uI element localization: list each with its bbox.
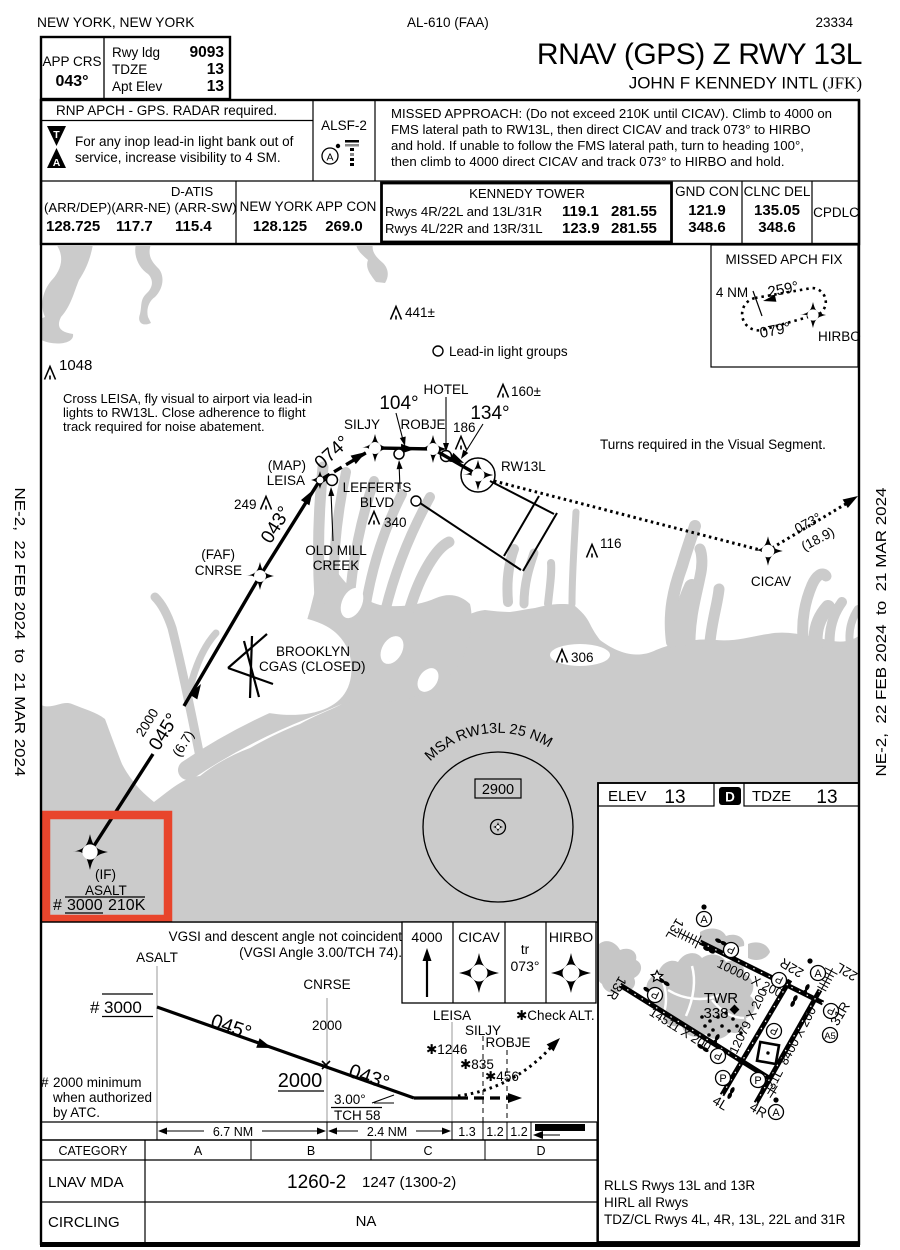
svg-text:Rwys 4R/22L and 13L/31R: Rwys 4R/22L and 13L/31R: [385, 204, 542, 219]
svg-text:D: D: [725, 790, 735, 805]
svg-text:APP CRS: APP CRS: [42, 54, 101, 69]
svg-text:123.9: 123.9: [562, 220, 600, 237]
svg-text:210K: 210K: [108, 897, 146, 914]
svg-text:13: 13: [207, 61, 225, 78]
svg-text:AL-610 (FAA): AL-610 (FAA): [407, 15, 489, 30]
svg-text:6.7 NM: 6.7 NM: [213, 1125, 253, 1139]
svg-text:281.55: 281.55: [611, 220, 657, 237]
svg-text:TDZE: TDZE: [112, 62, 147, 77]
svg-text:HIRBO: HIRBO: [549, 929, 593, 945]
svg-text:BROOKLYN: BROOKLYN: [276, 644, 350, 659]
svg-text:Rwy ldg: Rwy ldg: [112, 45, 160, 60]
svg-text:MISSED APPROACH: (Do not excee: MISSED APPROACH: (Do not exceed 210K unt…: [391, 106, 832, 121]
svg-text:D: D: [536, 1144, 545, 1158]
svg-text:Turns required in the Visual S: Turns required in the Visual Segment.: [600, 437, 826, 452]
svg-text:104°: 104°: [379, 393, 418, 414]
svg-text:ALSF-2: ALSF-2: [321, 118, 367, 133]
svg-text:A: A: [772, 1107, 780, 1119]
svg-text:CATEGORY: CATEGORY: [59, 1144, 129, 1158]
svg-text:ROBJE: ROBJE: [400, 417, 445, 432]
svg-text:track required for noise abate: track required for noise abatement.: [63, 419, 265, 434]
svg-text:OLD MILL: OLD MILL: [305, 543, 367, 558]
svg-text:128.125: 128.125: [253, 218, 307, 235]
svg-text:✱Check ALT.: ✱Check ALT.: [516, 1008, 595, 1023]
svg-text:LEISA: LEISA: [267, 473, 305, 488]
svg-text:1.2: 1.2: [510, 1125, 527, 1139]
svg-text:269.0: 269.0: [325, 218, 363, 235]
svg-text:NEW YORK APP CON: NEW YORK APP CON: [240, 199, 377, 214]
svg-text:2000: 2000: [312, 1018, 342, 1033]
svg-text:249: 249: [234, 497, 257, 512]
svg-text:Rwys 4L/22R and 13R/31L: Rwys 4L/22R and 13R/31L: [385, 221, 543, 236]
svg-text:ELEV: ELEV: [608, 788, 646, 805]
svg-text:For any inop lead-in light ban: For any inop lead-in light bank out of: [75, 134, 294, 149]
svg-text:P: P: [719, 1073, 726, 1085]
svg-text:P: P: [754, 1075, 761, 1087]
svg-text:128.725: 128.725: [46, 218, 100, 235]
svg-text:134°: 134°: [470, 403, 509, 424]
svg-text:HOTEL: HOTEL: [423, 382, 469, 397]
svg-text:service, increase visibility t: service, increase visibility to 4 SM.: [75, 150, 281, 165]
svg-text:348.6: 348.6: [758, 219, 796, 236]
svg-text:LEFFERTS: LEFFERTS: [343, 480, 412, 495]
svg-text:NE-2, 22 FEB 2024 to 21 MAR: NE-2, 22 FEB 2024 to 21 MAR 2024: [11, 488, 28, 777]
svg-text:LEISA: LEISA: [433, 1008, 471, 1023]
svg-text:BLVD: BLVD: [360, 495, 395, 510]
svg-text:(MAP): (MAP): [268, 458, 306, 473]
svg-text:TCH 58: TCH 58: [334, 1108, 381, 1123]
svg-text:4000: 4000: [411, 929, 442, 945]
svg-text:✱1246: ✱1246: [426, 1042, 467, 1057]
svg-text:FMS lateral path to RW13L, the: FMS lateral path to RW13L, then direct C…: [391, 122, 811, 137]
svg-text:ROBJE: ROBJE: [485, 1035, 530, 1050]
svg-text:RLLS Rwys 13L and 13R: RLLS Rwys 13L and 13R: [604, 1178, 755, 1193]
svg-text:3000: 3000: [104, 998, 142, 1017]
svg-text:A: A: [53, 157, 61, 169]
svg-text:RNP APCH - GPS. RADAR required: RNP APCH - GPS. RADAR required.: [56, 103, 277, 118]
svg-text:1.2: 1.2: [486, 1125, 503, 1139]
svg-text:338: 338: [703, 1005, 728, 1022]
svg-text:13: 13: [664, 787, 685, 808]
svg-text:281.55: 281.55: [611, 203, 657, 220]
svg-text:CICAV: CICAV: [458, 929, 500, 945]
svg-text:CPDLC: CPDLC: [813, 205, 859, 220]
svg-text:1247 (1300-2): 1247 (1300-2): [362, 1174, 456, 1191]
svg-text:by ATC.: by ATC.: [53, 1105, 100, 1120]
svg-text:13: 13: [816, 787, 837, 808]
svg-text:D-ATIS: D-ATIS: [171, 184, 213, 199]
svg-text:#: #: [90, 998, 100, 1017]
svg-text:GND CON: GND CON: [675, 184, 739, 199]
svg-text:B: B: [307, 1144, 315, 1158]
svg-text:348.6: 348.6: [688, 219, 726, 236]
svg-text:A: A: [814, 968, 822, 980]
svg-text:A: A: [326, 152, 333, 164]
svg-text:then climb to 4000 direct CICA: then climb to 4000 direct CICAV and trac…: [391, 154, 785, 169]
svg-text:CNRSE: CNRSE: [195, 563, 242, 578]
svg-text:RNAV (GPS) Z RWY 13L: RNAV (GPS) Z RWY 13L: [537, 38, 862, 71]
svg-text:KENNEDY TOWER: KENNEDY TOWER: [469, 186, 585, 201]
svg-text:(VGSI Angle 3.00/TCH 74).: (VGSI Angle 3.00/TCH 74).: [239, 945, 402, 960]
svg-text:23334: 23334: [815, 15, 853, 30]
svg-text:Cross LEISA, fly visual to air: Cross LEISA, fly visual to airport via l…: [63, 391, 312, 406]
svg-text:CNRSE: CNRSE: [303, 977, 350, 992]
svg-text:441±: 441±: [405, 305, 435, 320]
svg-text:(ARR/DEP)(ARR-NE) (ARR-SW): (ARR/DEP)(ARR-NE) (ARR-SW): [44, 200, 237, 215]
svg-text:TDZ/CL Rwys 4L, 4R, 13L, 22L a: TDZ/CL Rwys 4L, 4R, 13L, 22L and 31R: [604, 1212, 846, 1227]
svg-text:LNAV MDA: LNAV MDA: [48, 1174, 124, 1191]
svg-text:2000: 2000: [278, 1070, 323, 1092]
svg-text:CICAV: CICAV: [751, 574, 791, 589]
svg-text:186: 186: [453, 420, 476, 435]
svg-text:2900: 2900: [482, 782, 514, 798]
svg-text:and hold. If unable to follow: and hold. If unable to follow the FMS la…: [391, 138, 804, 153]
svg-text:NE-2, 22 FEB 2024 to 21 MAR: NE-2, 22 FEB 2024 to 21 MAR 2024: [873, 488, 890, 777]
svg-text:1.3: 1.3: [458, 1125, 475, 1139]
svg-text:A5: A5: [824, 1031, 836, 1042]
svg-text:TDZE: TDZE: [752, 788, 791, 805]
svg-text:3.00°: 3.00°: [334, 1092, 366, 1107]
svg-text:340: 340: [384, 515, 407, 530]
svg-text:2.4 NM: 2.4 NM: [367, 1125, 407, 1139]
svg-text:(FAF): (FAF): [201, 547, 235, 562]
svg-text:13: 13: [207, 78, 225, 95]
svg-text:when authorized: when authorized: [52, 1090, 152, 1105]
svg-text:JOHN F KENNEDY INTL (JFK): JOHN F KENNEDY INTL (JFK): [629, 74, 862, 93]
svg-text:117.7: 117.7: [116, 218, 153, 235]
svg-text:CIRCLING: CIRCLING: [48, 1214, 120, 1231]
svg-text:121.9: 121.9: [688, 202, 726, 219]
svg-text:T: T: [53, 129, 60, 141]
svg-text:043°: 043°: [55, 73, 88, 90]
svg-text:073°: 073°: [511, 958, 540, 974]
svg-text:Lead-in light groups: Lead-in light groups: [449, 344, 568, 359]
svg-text:Apt Elev: Apt Elev: [112, 79, 163, 94]
svg-text:NA: NA: [356, 1213, 377, 1230]
svg-text:C: C: [423, 1144, 432, 1158]
svg-text:ASALT: ASALT: [136, 950, 178, 965]
svg-text:160±: 160±: [511, 384, 541, 399]
svg-text:1260-2: 1260-2: [287, 1172, 346, 1193]
svg-text:4 NM: 4 NM: [716, 285, 748, 300]
svg-text:CLNC DEL: CLNC DEL: [744, 184, 811, 199]
svg-text:VGSI and descent angle not coi: VGSI and descent angle not coincident: [169, 929, 403, 944]
svg-text:1048: 1048: [59, 357, 92, 374]
svg-text:3000: 3000: [67, 897, 103, 914]
svg-text:(IF): (IF): [95, 867, 116, 882]
svg-text:tr: tr: [521, 942, 530, 957]
svg-text:A: A: [700, 914, 708, 926]
svg-text:SILJY: SILJY: [344, 417, 380, 432]
svg-text:119.1: 119.1: [562, 203, 599, 220]
svg-text:HIRBO: HIRBO: [818, 329, 861, 344]
svg-text:RW13L: RW13L: [501, 459, 546, 474]
svg-text:CGAS (CLOSED): CGAS (CLOSED): [259, 659, 366, 674]
svg-text:306: 306: [571, 650, 594, 665]
svg-text:ASALT: ASALT: [85, 883, 127, 898]
svg-text:9093: 9093: [190, 44, 225, 61]
svg-text:lights to RW13L. Close adheren: lights to RW13L. Close adherence to flig…: [63, 405, 306, 420]
svg-text:135.05: 135.05: [754, 202, 800, 219]
svg-text:HIRL all Rwys: HIRL all Rwys: [604, 1195, 689, 1210]
svg-text:A: A: [194, 1144, 203, 1158]
svg-text:CREEK: CREEK: [313, 558, 360, 573]
svg-text:116: 116: [600, 536, 622, 551]
svg-text:NEW YORK, NEW YORK: NEW YORK, NEW YORK: [37, 15, 195, 30]
svg-text:#: #: [53, 897, 62, 914]
svg-text:2000 minimum: 2000 minimum: [53, 1075, 142, 1090]
svg-text:115.4: 115.4: [175, 218, 212, 235]
svg-text:MISSED APCH FIX: MISSED APCH FIX: [725, 252, 842, 267]
